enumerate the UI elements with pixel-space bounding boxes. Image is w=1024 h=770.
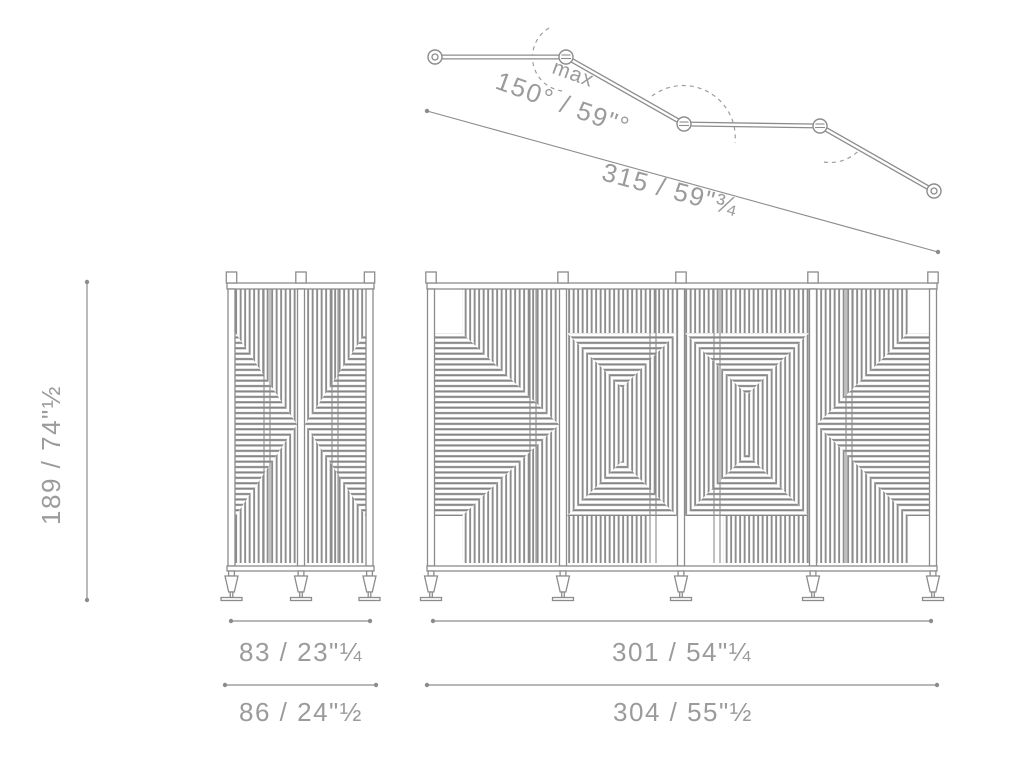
foot-stem: [230, 592, 233, 598]
foot-taper: [363, 576, 376, 592]
side-frame-width-label: 83 / 23"¼: [239, 637, 363, 667]
vertical-cord-region: [723, 516, 809, 563]
technical-drawing-canvas: max 150° / 59"° 315 / 59"¾ 189 / 74"½ 83…: [0, 0, 1024, 770]
foot-taper: [425, 576, 438, 592]
front-view-four-panel-screen: [421, 272, 944, 601]
side-overall-width-label: 86 / 24"½: [239, 697, 363, 727]
post: [560, 289, 567, 566]
hinge-circle: [428, 50, 442, 64]
foot-stem: [932, 592, 935, 598]
foot-neck: [229, 571, 235, 576]
post-cap: [676, 272, 686, 283]
foot-neck: [810, 571, 816, 576]
foot-taper: [675, 576, 688, 592]
top-rail: [427, 283, 937, 289]
foot-taper: [927, 576, 940, 592]
foot-neck: [930, 571, 936, 576]
foot-neck: [367, 571, 373, 576]
hinge-circle: [927, 184, 941, 198]
post: [678, 289, 685, 566]
dimension-end-dot: [936, 250, 940, 254]
foot-taper: [295, 576, 308, 592]
panel-edge-core: [820, 126, 934, 191]
top-rail: [227, 283, 374, 289]
horizontal-cord-region: [435, 333, 463, 516]
foot-neck: [678, 571, 684, 576]
foot-base-plate: [421, 598, 442, 601]
post-cap: [364, 272, 374, 283]
foot-base-plate: [923, 598, 944, 601]
foot-base-plate: [671, 598, 692, 601]
vertical-cord-region: [567, 516, 649, 563]
hinge-circle: [677, 117, 691, 131]
dimension-end-dot: [374, 683, 378, 687]
side-view-two-panel-screen: [221, 272, 380, 601]
dimension-end-dot: [368, 619, 372, 623]
dimension-end-dot: [85, 280, 89, 284]
post: [228, 289, 235, 566]
front-frame-width-label: 301 / 54"¼: [612, 637, 752, 667]
post-cap: [558, 272, 568, 283]
foot-stem: [812, 592, 815, 598]
vertical-cord-region: [567, 289, 677, 333]
dimension-end-dot: [935, 683, 939, 687]
dimension-end-dot: [85, 598, 89, 602]
unfolded-depth-dimension-label: 315 / 59"¾: [599, 157, 742, 222]
foot-stem: [562, 592, 565, 598]
foot-base-plate: [221, 598, 242, 601]
post: [428, 289, 435, 566]
rotation-arc: [824, 148, 861, 162]
foot-stem: [300, 592, 303, 598]
horizontal-cord-region: [908, 333, 930, 516]
post-cap: [296, 272, 306, 283]
height-dimension-label: 189 / 74"½: [36, 385, 66, 525]
bottom-rail: [427, 566, 937, 571]
foot-neck: [560, 571, 566, 576]
post-cap: [808, 272, 818, 283]
foot-taper: [225, 576, 238, 592]
foot-taper: [807, 576, 820, 592]
bottom-rail: [227, 566, 374, 571]
hinge-circle: [813, 119, 827, 133]
dimension-end-dot: [929, 619, 933, 623]
post: [810, 289, 817, 566]
foot-stem: [368, 592, 371, 598]
dimension-end-dot: [223, 683, 227, 687]
top-view: [425, 28, 941, 254]
foot-neck: [428, 571, 434, 576]
dimension-end-dot: [425, 109, 429, 113]
post: [930, 289, 937, 566]
vertical-cord-region: [685, 289, 809, 333]
dimension-end-dot: [229, 619, 233, 623]
post: [366, 289, 373, 566]
foot-base-plate: [803, 598, 824, 601]
dimension-end-dot: [431, 619, 435, 623]
dimension-end-dot: [425, 683, 429, 687]
foot-taper: [557, 576, 570, 592]
post-cap: [226, 272, 236, 283]
post-cap: [928, 272, 938, 283]
foot-neck: [298, 571, 304, 576]
technical-drawing-page: max 150° / 59"° 315 / 59"¾ 189 / 74"½ 83…: [0, 0, 1024, 770]
post-cap: [426, 272, 436, 283]
front-overall-width-label: 304 / 55"½: [613, 697, 753, 727]
foot-stem: [680, 592, 683, 598]
foot-base-plate: [359, 598, 380, 601]
foot-base-plate: [291, 598, 312, 601]
post: [298, 289, 305, 566]
foot-base-plate: [553, 598, 574, 601]
foot-stem: [430, 592, 433, 598]
